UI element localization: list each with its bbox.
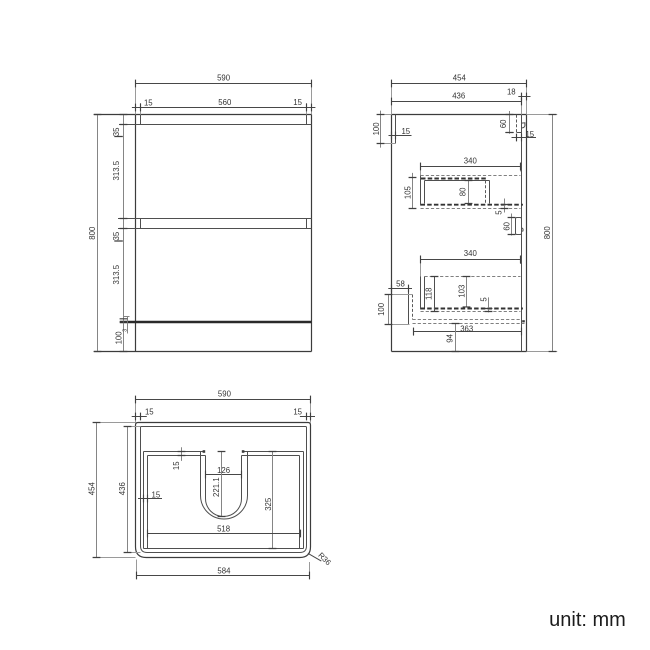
svg-text:unit: mm: unit: mm: [549, 609, 626, 631]
svg-text:103: 103: [457, 285, 466, 298]
svg-text:454: 454: [453, 73, 467, 82]
svg-text:436: 436: [452, 92, 465, 101]
svg-text:800: 800: [543, 226, 552, 240]
svg-text:325: 325: [264, 497, 273, 511]
svg-text:518: 518: [217, 525, 230, 534]
svg-text:15: 15: [144, 99, 153, 108]
svg-text:5: 5: [495, 210, 504, 215]
svg-text:340: 340: [464, 156, 478, 165]
svg-text:105: 105: [403, 185, 412, 199]
svg-text:313.5: 313.5: [112, 264, 121, 284]
svg-text:15: 15: [172, 461, 181, 470]
svg-text:R36: R36: [316, 551, 332, 567]
svg-text:454: 454: [87, 482, 96, 496]
svg-text:18: 18: [507, 88, 516, 97]
svg-text:221.1: 221.1: [212, 477, 221, 497]
svg-text:100: 100: [372, 122, 381, 136]
svg-text:800: 800: [88, 226, 97, 240]
svg-text:126: 126: [217, 466, 230, 475]
svg-text:584: 584: [217, 567, 231, 576]
svg-text:560: 560: [218, 98, 232, 107]
svg-text:340: 340: [464, 249, 478, 258]
svg-text:313.5: 313.5: [112, 160, 121, 180]
svg-text:35: 35: [112, 231, 121, 240]
svg-text:590: 590: [218, 389, 232, 398]
svg-text:35: 35: [112, 127, 121, 136]
svg-text:100: 100: [115, 331, 124, 345]
svg-text:60: 60: [502, 221, 511, 230]
svg-text:590: 590: [217, 73, 231, 82]
svg-text:15: 15: [145, 407, 154, 416]
svg-text:15: 15: [525, 130, 534, 139]
svg-text:15: 15: [401, 127, 410, 136]
svg-text:15: 15: [152, 491, 161, 500]
svg-text:100: 100: [377, 302, 386, 316]
svg-text:5: 5: [480, 297, 489, 302]
svg-text:363: 363: [460, 324, 473, 333]
svg-text:94: 94: [446, 333, 455, 342]
svg-text:436: 436: [118, 482, 127, 495]
svg-text:80: 80: [459, 187, 468, 196]
svg-text:15: 15: [293, 98, 302, 107]
svg-text:118: 118: [425, 288, 434, 300]
svg-text:60: 60: [499, 119, 508, 128]
svg-text:3: 3: [123, 329, 129, 332]
svg-text:15: 15: [293, 407, 302, 416]
svg-text:58: 58: [396, 279, 405, 288]
